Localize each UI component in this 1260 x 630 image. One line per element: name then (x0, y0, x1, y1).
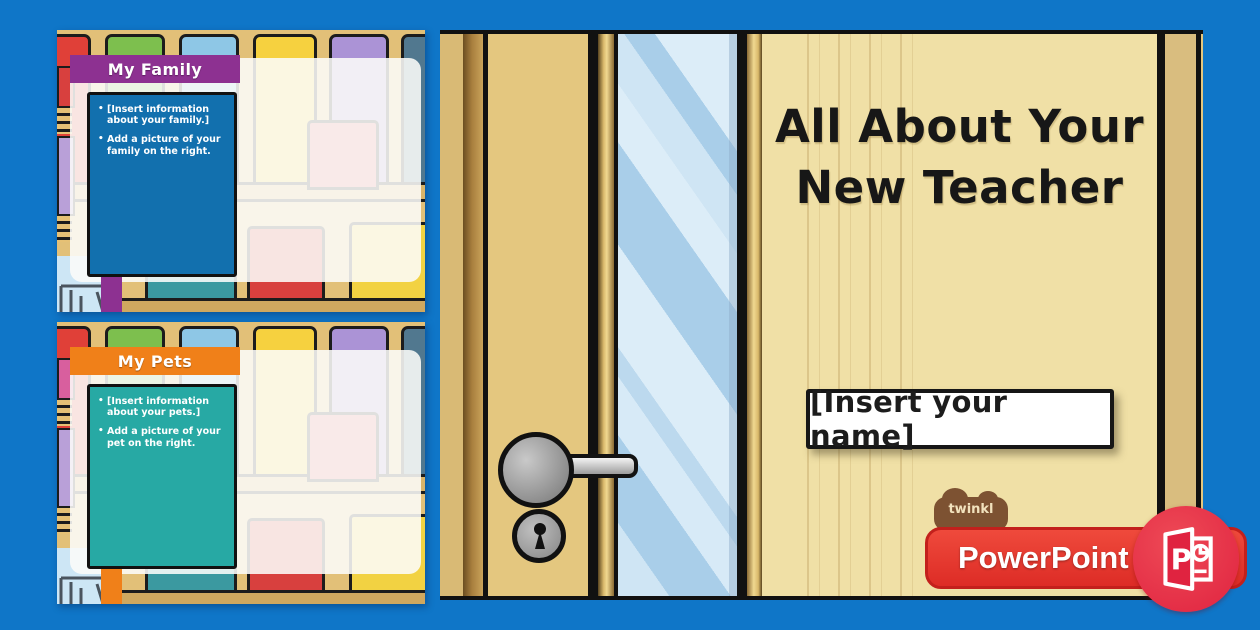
door-outline (588, 34, 598, 596)
slide-thumbnail-my-pets: My Pets [Insert information about your p… (57, 322, 425, 604)
powerpoint-icon: P (1149, 522, 1223, 596)
bullet-item: [Insert information about your pets.] (97, 396, 227, 418)
door-frame-shadow (463, 34, 483, 596)
keyhole (512, 509, 566, 563)
classroom-door-artwork: All About Your New Teacher [Insert your … (440, 30, 1203, 600)
slide-title-banner: My Pets (70, 347, 240, 375)
bullet-list: [Insert information about your pets.] Ad… (97, 396, 227, 449)
slide-title: My Family (108, 60, 202, 79)
resource-title-line1: All About Your (762, 96, 1157, 157)
door-moulding (747, 34, 762, 596)
resource-title-line2: New Teacher (762, 157, 1157, 218)
notebook-panel: [Insert information about your family.] … (87, 92, 237, 277)
insert-name-text: [Insert your name] (810, 385, 1110, 453)
twinkl-logo-text: twinkl (948, 502, 993, 517)
bookmark-ribbon (101, 274, 122, 312)
svg-text:P: P (1171, 542, 1192, 576)
notebook-panel: [Insert information about your pets.] Ad… (87, 384, 237, 569)
insert-name-placeholder: [Insert your name] (806, 389, 1114, 449)
door-outline (737, 34, 747, 596)
door-moulding (598, 34, 614, 596)
resource-title: All About Your New Teacher (762, 96, 1157, 218)
powerpoint-badge-label: PowerPoint (958, 540, 1129, 576)
door-window-glass (618, 34, 737, 596)
door-handle-base (498, 432, 574, 508)
slide-title-banner: My Family (70, 55, 240, 83)
keyhole-tail (535, 531, 545, 549)
bookmark-ribbon (101, 566, 122, 604)
bullet-item: Add a picture of your family on the righ… (97, 134, 227, 156)
twinkl-logo: twinkl (934, 497, 1008, 531)
bullet-item: [Insert information about your family.] (97, 104, 227, 126)
bullet-item: Add a picture of your pet on the right. (97, 426, 227, 448)
resource-preview: My Family [Insert information about your… (0, 0, 1260, 630)
slide-title: My Pets (118, 352, 192, 371)
slide-thumbnail-my-family: My Family [Insert information about your… (57, 30, 425, 312)
powerpoint-icon-circle: P (1133, 506, 1239, 612)
door-frame-strip (440, 34, 463, 596)
bullet-list: [Insert information about your family.] … (97, 104, 227, 157)
